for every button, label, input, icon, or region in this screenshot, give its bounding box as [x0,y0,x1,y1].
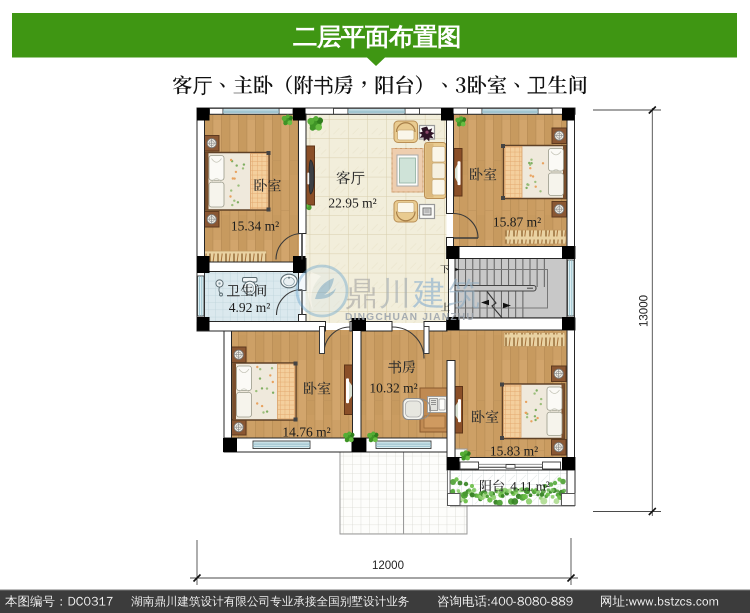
svg-text:13000: 13000 [639,295,651,327]
svg-text:22.95 m²: 22.95 m² [328,196,376,211]
svg-text:4.11 m²: 4.11 m² [510,479,550,494]
svg-text:12000: 12000 [372,560,404,572]
svg-text:14.76 m²: 14.76 m² [282,425,330,440]
svg-text:4.92 m²: 4.92 m² [229,300,271,315]
svg-text:15.83 m²: 15.83 m² [490,444,538,459]
svg-text:10.32 m²: 10.32 m² [369,381,417,396]
svg-text:DINGCHUAN JIANZHU: DINGCHUAN JIANZHU [345,312,475,323]
svg-text:15.34 m²: 15.34 m² [231,219,279,234]
svg-text:15.87 m²: 15.87 m² [493,215,541,230]
